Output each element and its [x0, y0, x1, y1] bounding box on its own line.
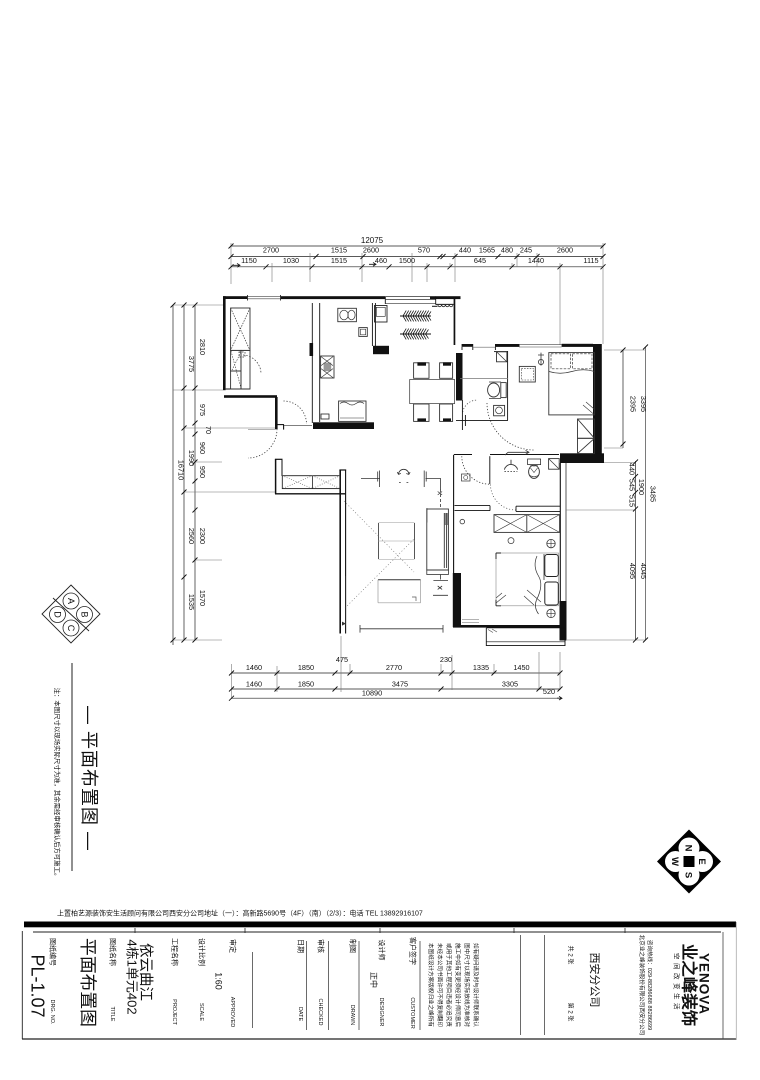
svg-text:1115: 1115: [583, 256, 598, 265]
svg-text:设计师: 设计师: [378, 940, 387, 961]
svg-text:SCALE: SCALE: [198, 1003, 204, 1021]
svg-text:注：本图尺寸以现场实际尺寸为准，其余需经审核确认后方可施工。: 注：本图尺寸以现场实际尺寸为准，其余需经审核确认后方可施工。: [53, 688, 62, 880]
svg-text:1515: 1515: [331, 256, 347, 265]
svg-text:3485: 3485: [649, 486, 658, 502]
svg-text:DATE: DATE: [297, 1007, 303, 1022]
svg-text:共 2 张: 共 2 张: [567, 946, 575, 965]
svg-text:2770: 2770: [386, 663, 402, 672]
svg-text:DESIGNER: DESIGNER: [378, 998, 384, 1027]
svg-text:咨询热线：029-88286688 88286699: 咨询热线：029-88286688 88286699: [646, 940, 654, 1031]
svg-text:图纸名称: 图纸名称: [109, 938, 118, 966]
svg-text:2395: 2395: [629, 396, 638, 412]
svg-text:审定: 审定: [229, 939, 238, 953]
svg-text:平面布置图: 平面布置图: [78, 938, 98, 1027]
svg-text:— 平面布置图 —: — 平面布置图 —: [79, 706, 99, 851]
svg-text:1440: 1440: [528, 256, 544, 265]
svg-text:1150: 1150: [241, 256, 257, 265]
svg-text:2600: 2600: [363, 246, 379, 255]
svg-text:440: 440: [628, 463, 637, 475]
svg-text:645: 645: [474, 256, 486, 265]
svg-text:70: 70: [204, 426, 213, 434]
svg-text:C: C: [66, 625, 76, 632]
svg-text:440: 440: [459, 246, 471, 255]
svg-text:1850: 1850: [298, 680, 314, 689]
svg-text:2810: 2810: [198, 339, 207, 355]
svg-text:DRAWN: DRAWN: [349, 1005, 355, 1026]
svg-text:1570: 1570: [198, 590, 207, 606]
svg-text:未经本公司书面许可不得复制翻印: 未经本公司书面许可不得复制翻印: [436, 943, 444, 1027]
svg-text:515: 515: [628, 495, 637, 507]
svg-text:3305: 3305: [502, 680, 518, 689]
svg-text:1460: 1460: [246, 680, 262, 689]
svg-text:日期: 日期: [297, 939, 305, 953]
svg-text:545: 545: [628, 479, 637, 491]
svg-text:960: 960: [198, 442, 207, 454]
svg-text:图中尺寸以现场实际放线为准核对: 图中尺寸以现场实际放线为准核对: [463, 943, 471, 1027]
svg-text:如有疑问请及时与设计师联系确认: 如有疑问请及时与设计师联系确认: [472, 943, 480, 1027]
svg-text:3395: 3395: [639, 396, 648, 412]
svg-text:YENOVA: YENOVA: [697, 953, 712, 1015]
svg-text:北京业之峰装饰股份有限公司西安分公司: 北京业之峰装饰股份有限公司西安分公司: [638, 935, 646, 1036]
svg-text:上置柏艺源装饰安生活顾问有限公司西安分公司地址（一）：高新路: 上置柏艺源装饰安生活顾问有限公司西安分公司地址（一）：高新路5690号（4F）（…: [57, 909, 423, 918]
svg-text:1450: 1450: [513, 663, 529, 672]
svg-text:依云曲江: 依云曲江: [137, 943, 154, 1001]
svg-text:480: 480: [501, 246, 513, 255]
svg-text:PROJECT: PROJECT: [171, 999, 177, 1025]
svg-text:460: 460: [375, 256, 387, 265]
svg-text:CHECKED: CHECKED: [317, 999, 323, 1026]
svg-text:N: N: [682, 845, 693, 852]
svg-text:1900: 1900: [637, 479, 646, 495]
svg-text:或用于其他工程项目违者必追究责: 或用于其他工程项目违者必追究责: [445, 943, 453, 1027]
svg-text:2560: 2560: [187, 528, 196, 544]
svg-text:1850: 1850: [298, 663, 314, 672]
svg-text:第 2 张: 第 2 张: [567, 1003, 575, 1022]
svg-text:2700: 2700: [263, 246, 279, 255]
svg-text:230: 230: [440, 655, 452, 664]
svg-text:1565: 1565: [479, 246, 495, 255]
svg-text:1030: 1030: [283, 256, 299, 265]
svg-text:2600: 2600: [557, 246, 573, 255]
svg-text:CUSTOMER: CUSTOMER: [409, 997, 415, 1028]
svg-text:570: 570: [418, 246, 430, 255]
svg-text:施工中如有变更须经设计师同意后: 施工中如有变更须经设计师同意后: [454, 943, 462, 1027]
svg-text:950: 950: [198, 466, 207, 478]
svg-text:1535: 1535: [187, 594, 196, 610]
svg-text:图纸编号: 图纸编号: [49, 938, 58, 966]
svg-text:APPROVED: APPROVED: [229, 997, 235, 1028]
svg-text:3475: 3475: [392, 680, 408, 689]
svg-text:1335: 1335: [473, 663, 489, 672]
svg-text:975: 975: [198, 404, 207, 416]
svg-text:正中: 正中: [369, 972, 379, 988]
svg-text:W: W: [669, 857, 680, 866]
svg-text:业之峰装饰: 业之峰装饰: [680, 944, 700, 1027]
svg-text:DRG. NO.: DRG. NO.: [49, 999, 55, 1025]
svg-text:制图: 制图: [349, 939, 358, 953]
svg-text:1515: 1515: [331, 246, 347, 255]
svg-text:3775: 3775: [187, 356, 196, 372]
svg-text:4045: 4045: [639, 563, 648, 579]
svg-text:设计比例: 设计比例: [198, 938, 207, 966]
svg-text:1990: 1990: [187, 450, 196, 466]
svg-text:S: S: [682, 872, 693, 878]
svg-text:TITLE: TITLE: [109, 1007, 115, 1022]
svg-text:西安分公司: 西安分公司: [588, 953, 602, 1008]
svg-text:1460: 1460: [246, 663, 262, 672]
svg-text:工程名称: 工程名称: [171, 938, 180, 966]
svg-text:4095: 4095: [628, 563, 637, 579]
svg-text:245: 245: [520, 246, 532, 255]
svg-text:本图纸设计方案版权归业之峰所有: 本图纸设计方案版权归业之峰所有: [427, 943, 435, 1027]
svg-text:B: B: [80, 611, 90, 617]
svg-text:审核: 审核: [317, 939, 326, 953]
svg-text:D: D: [53, 611, 63, 618]
svg-text:16710: 16710: [177, 460, 186, 480]
svg-text:客户签字: 客户签字: [409, 937, 418, 965]
svg-text:10890: 10890: [362, 689, 382, 698]
svg-text:E: E: [696, 858, 707, 864]
svg-text:A: A: [66, 598, 76, 604]
svg-text:1:60: 1:60: [214, 972, 224, 990]
svg-text:12075: 12075: [361, 236, 384, 245]
svg-text:475: 475: [336, 655, 348, 664]
svg-text:PL-1.07: PL-1.07: [28, 954, 48, 1017]
svg-text:2300: 2300: [198, 528, 207, 544]
svg-text:520: 520: [543, 687, 555, 696]
svg-text:1500: 1500: [399, 256, 415, 265]
